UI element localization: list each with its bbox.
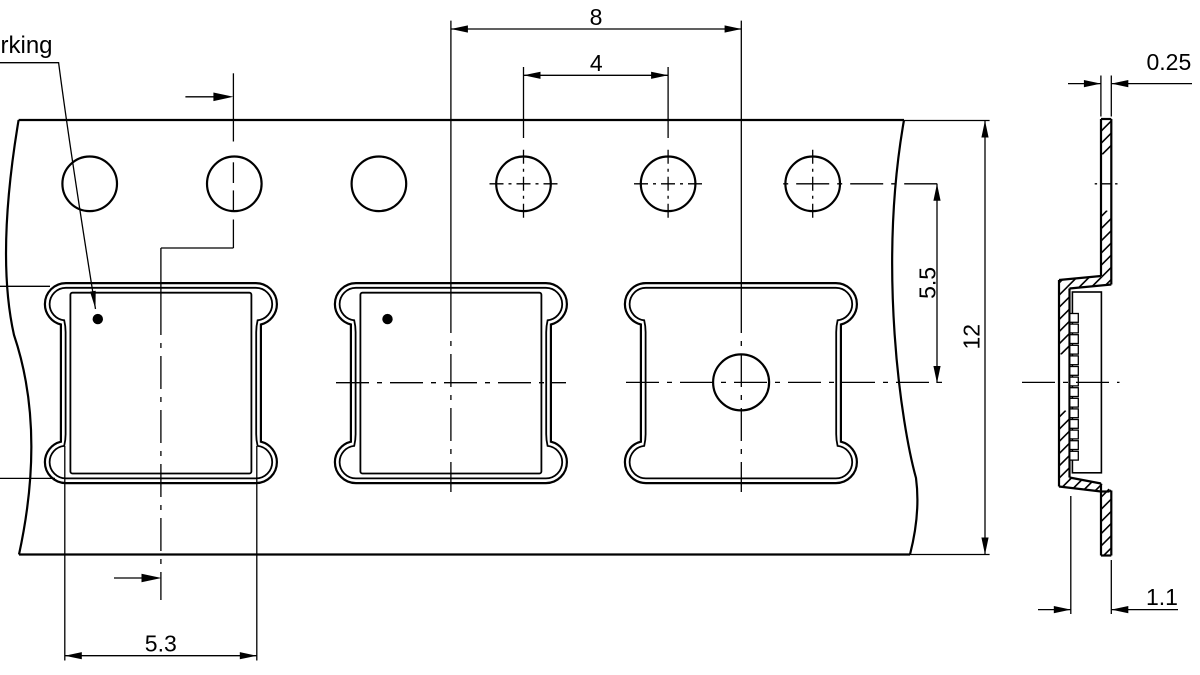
svg-text:0.25: 0.25: [1147, 49, 1192, 75]
svg-text:5.3: 5.3: [145, 631, 177, 657]
svg-text:5.5: 5.5: [915, 267, 941, 299]
svg-text:4: 4: [590, 50, 603, 76]
svg-text:8: 8: [590, 4, 603, 30]
svg-text:12: 12: [958, 324, 984, 350]
svg-text:rking: rking: [1, 32, 53, 59]
svg-text:1.1: 1.1: [1146, 584, 1178, 610]
